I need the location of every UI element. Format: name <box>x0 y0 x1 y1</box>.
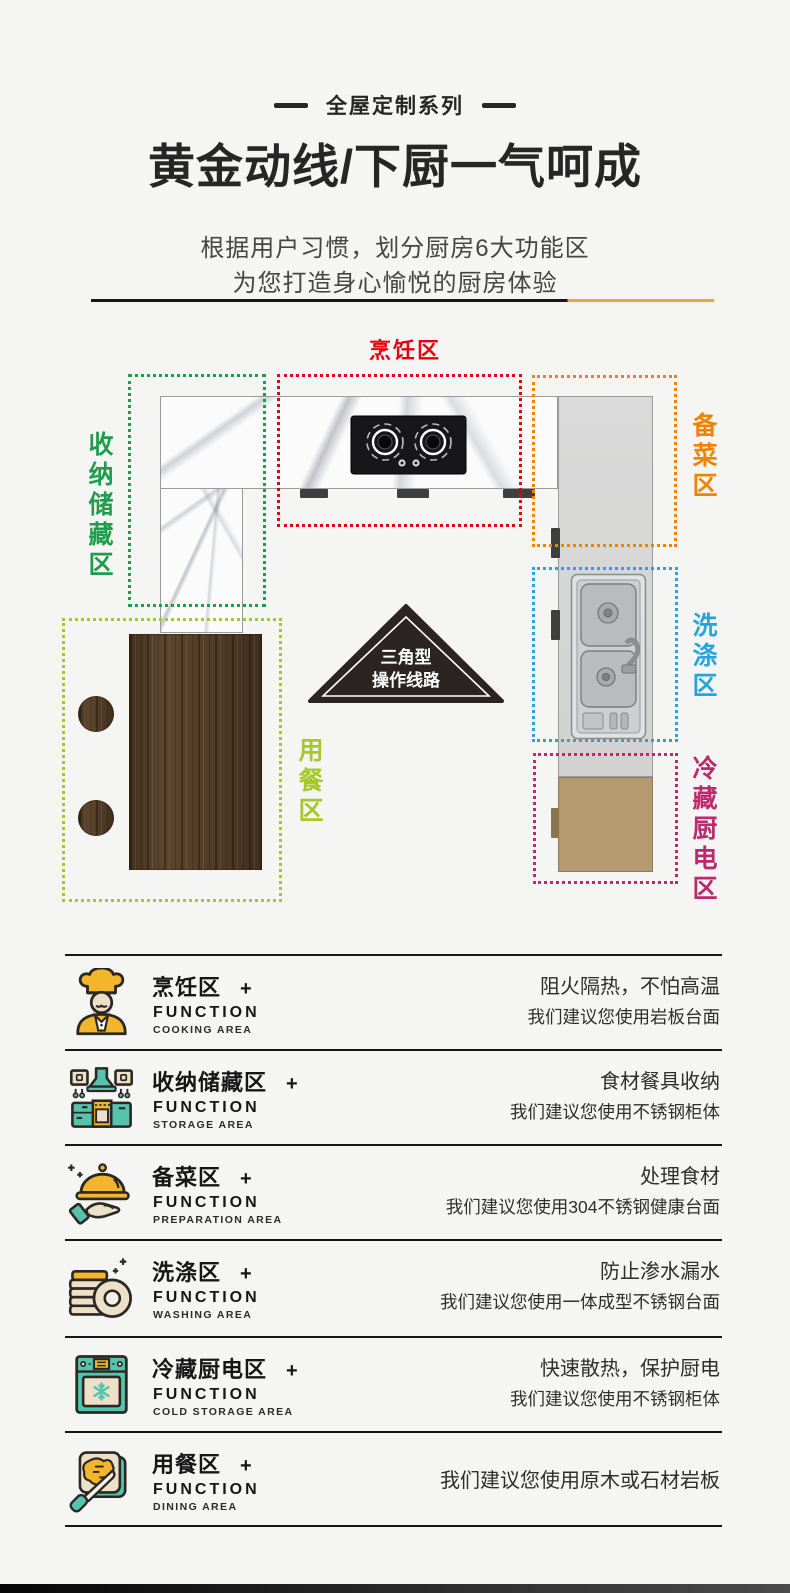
function-title: 收纳储藏区 <box>152 1065 267 1097</box>
series-label: 全屋定制系列 <box>326 90 464 120</box>
area-label: DINING AREA <box>153 1501 237 1513</box>
plus-icon: + <box>286 1360 298 1383</box>
header-divider <box>91 299 714 302</box>
area-label: PREPARATION AREA <box>153 1214 283 1226</box>
plus-icon: + <box>240 978 252 1001</box>
plus-icon: + <box>240 1168 252 1191</box>
function-row-washing: 洗涤区 + FUNCTION WASHING AREA 防止渗水漏水 我们建议您… <box>65 1240 722 1334</box>
function-desc-2: 我们建议您使用304不锈钢健康台面 <box>446 1194 720 1219</box>
function-row-cold-storage: 冷藏厨电区 + FUNCTION COLD STORAGE AREA 快速散热，… <box>65 1337 722 1431</box>
function-title: 洗涤区 <box>152 1255 221 1287</box>
function-row-preparation: 备菜区 + FUNCTION PREPARATION AREA 处理食材 我们建… <box>65 1145 722 1239</box>
function-row-dining: 用餐区 + FUNCTION DINING AREA 我们建议您使用原木或石材岩… <box>65 1432 722 1526</box>
area-label: WASHING AREA <box>153 1309 252 1321</box>
function-title: 冷藏厨电区 <box>152 1352 267 1384</box>
zone-box-cold-storage <box>533 753 678 884</box>
function-title: 烹饪区 <box>152 970 221 1002</box>
function-label: FUNCTION <box>153 1004 260 1022</box>
storage-icon <box>67 1063 136 1132</box>
zone-box-washing <box>532 567 678 742</box>
function-title: 用餐区 <box>152 1447 221 1479</box>
zone-label-cooking: 烹饪区 <box>305 333 505 365</box>
zone-box-cooking <box>277 374 522 527</box>
zone-box-storage <box>128 374 266 607</box>
plus-icon: + <box>240 1263 252 1286</box>
function-row-storage: 收纳储藏区 + FUNCTION STORAGE AREA 食材餐具收纳 我们建… <box>65 1050 722 1144</box>
function-desc-1: 食材餐具收纳 <box>600 1065 720 1094</box>
svg-text:三角型: 三角型 <box>381 647 432 667</box>
function-desc-1: 快速散热，保护厨电 <box>540 1352 720 1381</box>
zone-label-preparation: 备菜区 <box>690 412 715 502</box>
chef-icon <box>67 968 136 1037</box>
area-label: COOKING AREA <box>153 1024 252 1036</box>
function-label: FUNCTION <box>153 1386 260 1404</box>
function-desc-2: 我们建议您使用岩板台面 <box>528 1004 721 1029</box>
series-heading: 全屋定制系列 <box>0 90 790 120</box>
cloche-icon <box>67 1158 136 1227</box>
function-label: FUNCTION <box>153 1099 260 1117</box>
subtitle-line-2: 为您打造身心愉悦的厨房体验 <box>0 263 790 298</box>
plus-icon: + <box>286 1073 298 1096</box>
function-row-cooking: 烹饪区 + FUNCTION COOKING AREA 阻火隔热，不怕高温 我们… <box>65 955 722 1049</box>
function-desc-2: 我们建议您使用一体成型不锈钢台面 <box>440 1289 720 1314</box>
function-desc-1: 我们建议您使用原木或石材岩板 <box>440 1464 720 1493</box>
function-desc-1: 处理食材 <box>640 1160 720 1189</box>
zone-box-dining <box>62 618 282 902</box>
plus-icon: + <box>240 1455 252 1478</box>
dash-left-icon <box>274 103 308 108</box>
subtitle-line-1: 根据用户习惯，划分厨房6大功能区 <box>0 228 790 263</box>
fridge-icon <box>67 1350 136 1419</box>
bottom-bar <box>0 1584 790 1593</box>
area-label: STORAGE AREA <box>153 1119 254 1131</box>
page-title: 黄金动线/下厨一气呵成 <box>0 128 790 197</box>
function-desc-1: 阻火隔热，不怕高温 <box>540 970 720 999</box>
area-label: COLD STORAGE AREA <box>153 1406 293 1418</box>
zone-label-storage: 收纳储藏区 <box>86 431 111 581</box>
plates-icon <box>67 1253 136 1322</box>
function-label: FUNCTION <box>153 1289 260 1307</box>
zone-label-washing: 洗涤区 <box>690 612 715 702</box>
dash-right-icon <box>482 103 516 108</box>
toast-icon <box>67 1445 136 1514</box>
zone-label-dining: 用餐区 <box>296 737 321 827</box>
zone-label-cold-storage: 冷藏厨电区 <box>690 755 715 905</box>
function-label: FUNCTION <box>153 1481 260 1499</box>
svg-text:操作线路: 操作线路 <box>372 670 441 690</box>
zone-box-preparation <box>532 375 677 547</box>
function-desc-2: 我们建议您使用不锈钢柜体 <box>510 1386 720 1411</box>
function-label: FUNCTION <box>153 1194 260 1212</box>
function-desc-2: 我们建议您使用不锈钢柜体 <box>510 1099 720 1124</box>
work-triangle: 三角型 操作线路 <box>306 602 506 706</box>
function-title: 备菜区 <box>152 1160 221 1192</box>
poster-page: 全屋定制系列 黄金动线/下厨一气呵成 根据用户习惯，划分厨房6大功能区 为您打造… <box>0 0 790 1593</box>
function-desc-1: 防止渗水漏水 <box>600 1255 720 1284</box>
